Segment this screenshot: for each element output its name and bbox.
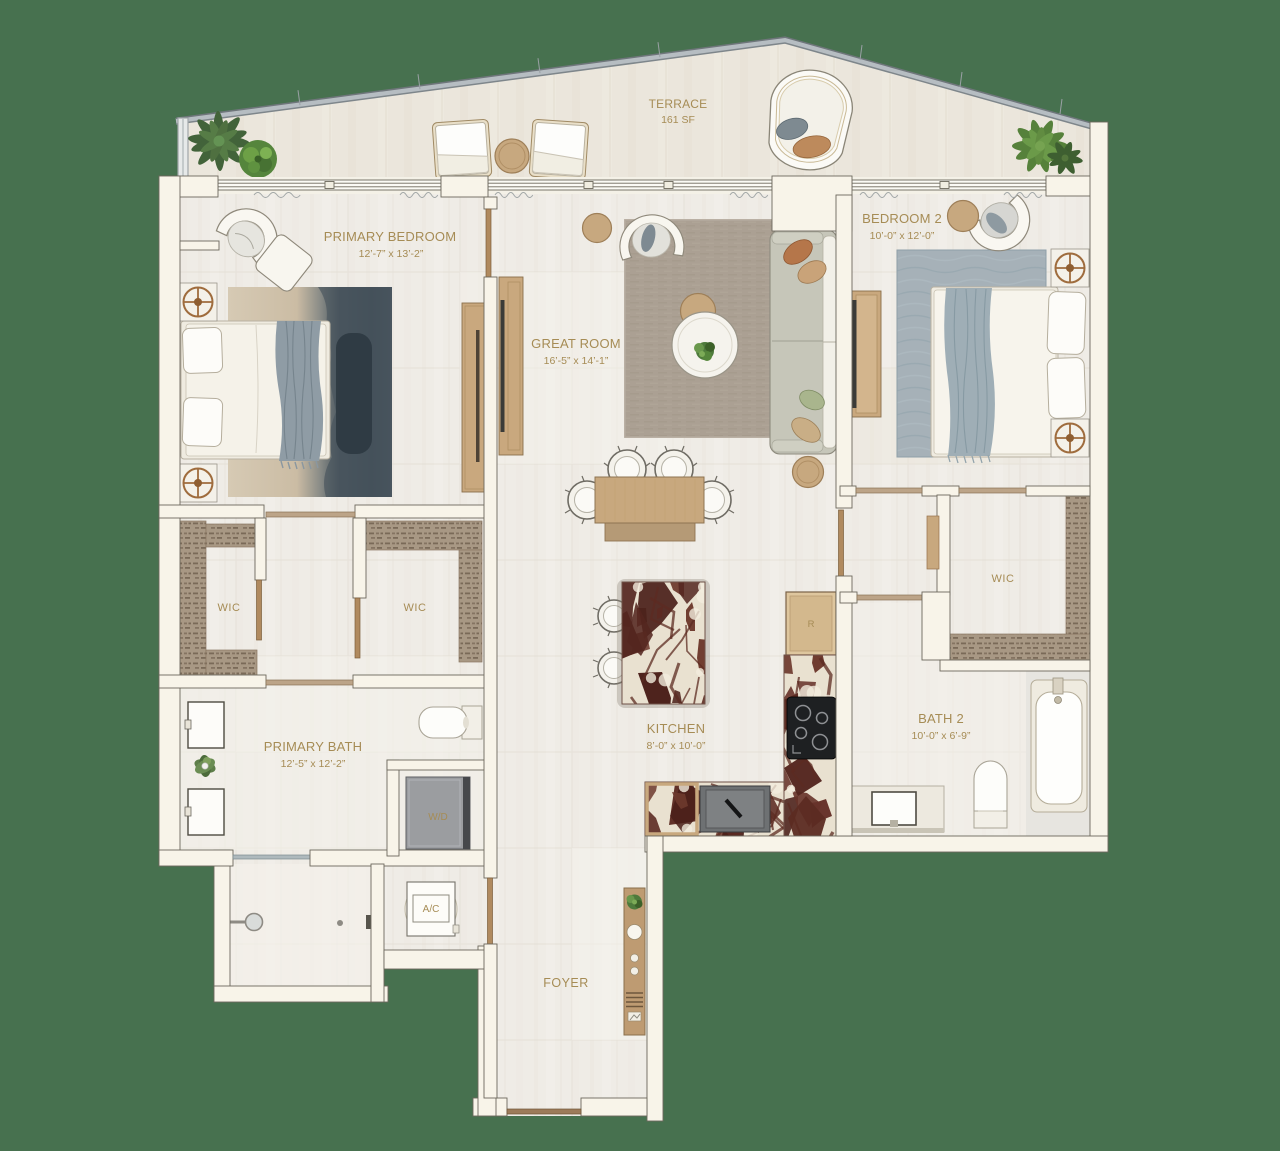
svg-text:BEDROOM 2: BEDROOM 2 bbox=[862, 211, 942, 226]
svg-text:PRIMARY BATH: PRIMARY BATH bbox=[264, 739, 362, 754]
svg-text:10’-0” x 12’-0”: 10’-0” x 12’-0” bbox=[870, 230, 935, 242]
svg-text:10’-0” x 6’-9”: 10’-0” x 6’-9” bbox=[912, 730, 971, 742]
svg-text:WIC: WIC bbox=[404, 602, 427, 614]
svg-text:TERRACE: TERRACE bbox=[649, 97, 708, 111]
svg-text:KITCHEN: KITCHEN bbox=[647, 721, 705, 736]
svg-text:A/C: A/C bbox=[423, 904, 440, 915]
svg-text:8’-0” x 10’-0”: 8’-0” x 10’-0” bbox=[647, 740, 706, 752]
svg-text:12’-7” x 13’-2”: 12’-7” x 13’-2” bbox=[359, 248, 424, 260]
svg-text:PRIMARY BEDROOM: PRIMARY BEDROOM bbox=[324, 229, 457, 244]
svg-text:WIC: WIC bbox=[992, 573, 1015, 585]
svg-text:GREAT ROOM: GREAT ROOM bbox=[531, 336, 621, 351]
svg-text:WIC: WIC bbox=[218, 602, 241, 614]
svg-text:W/D: W/D bbox=[428, 812, 447, 823]
svg-text:16’-5” x 14’-1”: 16’-5” x 14’-1” bbox=[544, 355, 609, 367]
svg-text:12’-5” x 12’-2”: 12’-5” x 12’-2” bbox=[281, 758, 346, 770]
svg-text:FOYER: FOYER bbox=[543, 976, 589, 990]
svg-text:161 SF: 161 SF bbox=[661, 114, 695, 126]
svg-text:BATH 2: BATH 2 bbox=[918, 711, 964, 726]
svg-text:R: R bbox=[808, 619, 815, 630]
